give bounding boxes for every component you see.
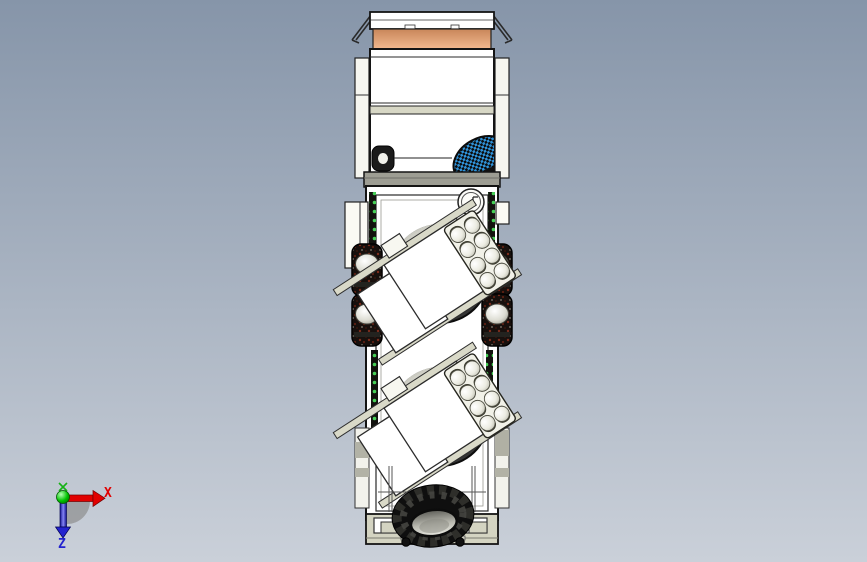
scene-svg[interactable]: X Z [0, 0, 867, 562]
corner-bracket-right[interactable] [496, 202, 509, 224]
caster-left [402, 538, 410, 546]
z-axis-label: Z [58, 537, 66, 552]
windshield[interactable] [373, 29, 491, 49]
cab-side-right[interactable] [495, 58, 509, 178]
caster-right [456, 538, 464, 546]
cad-viewport[interactable]: X Z [0, 0, 867, 562]
cab-side-left[interactable] [355, 58, 369, 178]
truck-model[interactable] [327, 12, 523, 552]
x-axis-label: X [104, 486, 112, 501]
chassis-gap [364, 172, 500, 187]
led-rail-front-left [369, 192, 376, 250]
origin-ball[interactable] [57, 491, 70, 504]
roof-trim [370, 106, 494, 114]
rear-panel-right[interactable] [495, 428, 509, 508]
wheel-mid-right-2[interactable] [482, 294, 512, 346]
front-bumper[interactable] [370, 12, 494, 29]
led-rail-rear-left [371, 350, 378, 434]
